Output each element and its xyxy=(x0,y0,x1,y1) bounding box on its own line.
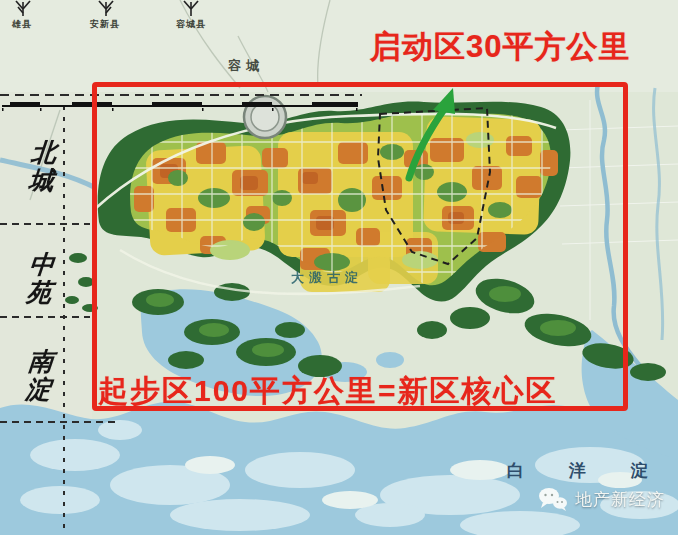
wechat-icon xyxy=(538,486,568,512)
county-label-xiongxian: 雄县 xyxy=(12,18,32,31)
watermark-text: 地产新经济 xyxy=(575,488,665,511)
tree-symbol-icon xyxy=(180,0,202,16)
core-area-label: 起步区100平方公里=新区核心区 xyxy=(98,371,558,412)
tree-symbol-icon xyxy=(95,0,117,16)
xiongan-planning-map: 雄县 安新县 容城县 容城 北城 中苑 南淀 大溵古淀 白 洋 淀 启动区30平… xyxy=(0,0,678,535)
county-label-rongcheng: 容城县 xyxy=(176,18,206,31)
startup-area-label: 启动区30平方公里 xyxy=(370,26,630,68)
town-label-rongcheng: 容城 xyxy=(228,57,264,75)
lake-label-baiyangdian: 白 洋 淀 xyxy=(507,459,667,482)
region-label-nandian: 南淀 xyxy=(25,347,60,403)
region-label-zhongyuan: 中苑 xyxy=(26,250,61,306)
core-area-outline xyxy=(92,82,628,411)
tree-symbol-icon xyxy=(12,0,34,16)
watermark: 地产新经济 xyxy=(538,486,665,512)
region-label-beicheng: 北城 xyxy=(28,138,63,194)
startup-arrow-icon xyxy=(393,86,477,184)
county-label-anxin: 安新县 xyxy=(90,18,120,31)
